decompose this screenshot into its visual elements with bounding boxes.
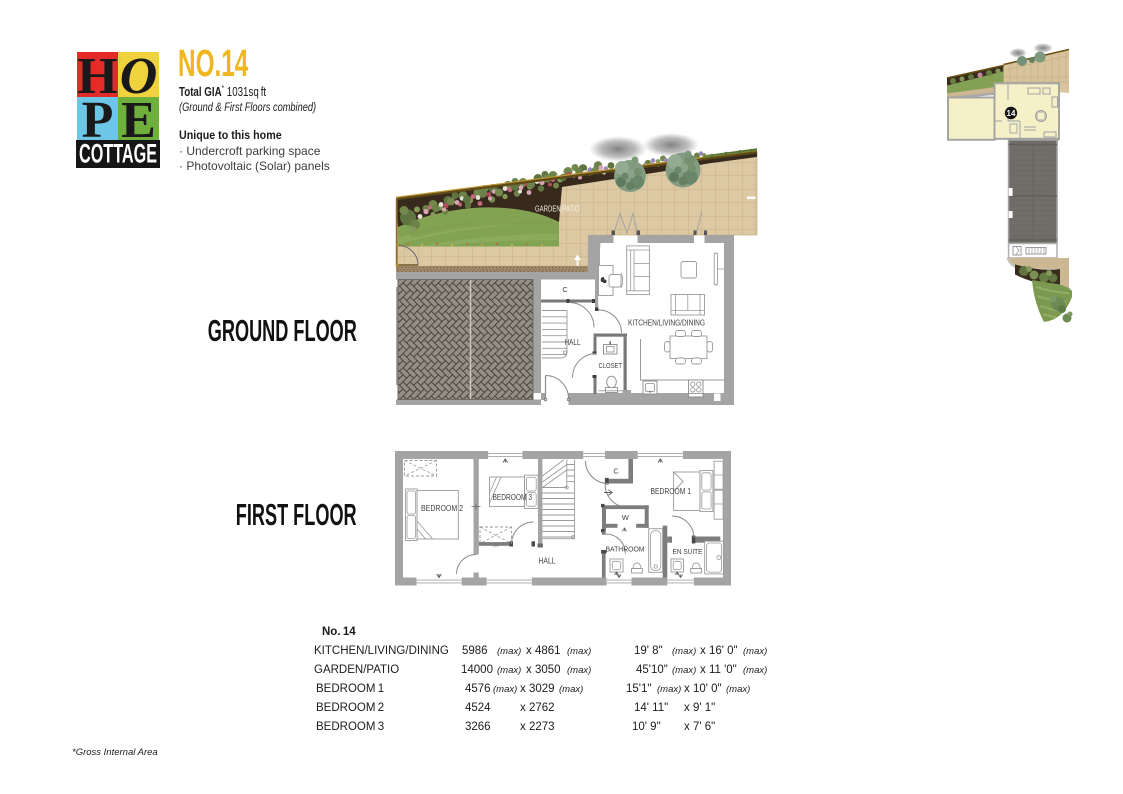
svg-text:C: C	[562, 285, 568, 294]
svg-text:BEDROOM 3: BEDROOM 3	[493, 492, 533, 502]
svg-text:BEDROOM 1: BEDROOM 1	[651, 486, 692, 496]
svg-text:W: W	[622, 513, 630, 522]
svg-text:14: 14	[1007, 109, 1016, 118]
svg-text:C: C	[613, 467, 619, 476]
svg-text:HALL: HALL	[565, 338, 581, 347]
svg-text:EN SUITE: EN SUITE	[673, 547, 703, 556]
svg-text:CLOSET: CLOSET	[599, 361, 623, 370]
svg-text:BATHROOM: BATHROOM	[606, 545, 645, 554]
svg-text:GARDEN/PATIO: GARDEN/PATIO	[535, 204, 580, 214]
svg-text:BEDROOM 2: BEDROOM 2	[421, 503, 463, 513]
svg-text:KITCHEN/LIVING/DINING: KITCHEN/LIVING/DINING	[628, 318, 705, 328]
svg-text:HALL: HALL	[539, 557, 556, 566]
